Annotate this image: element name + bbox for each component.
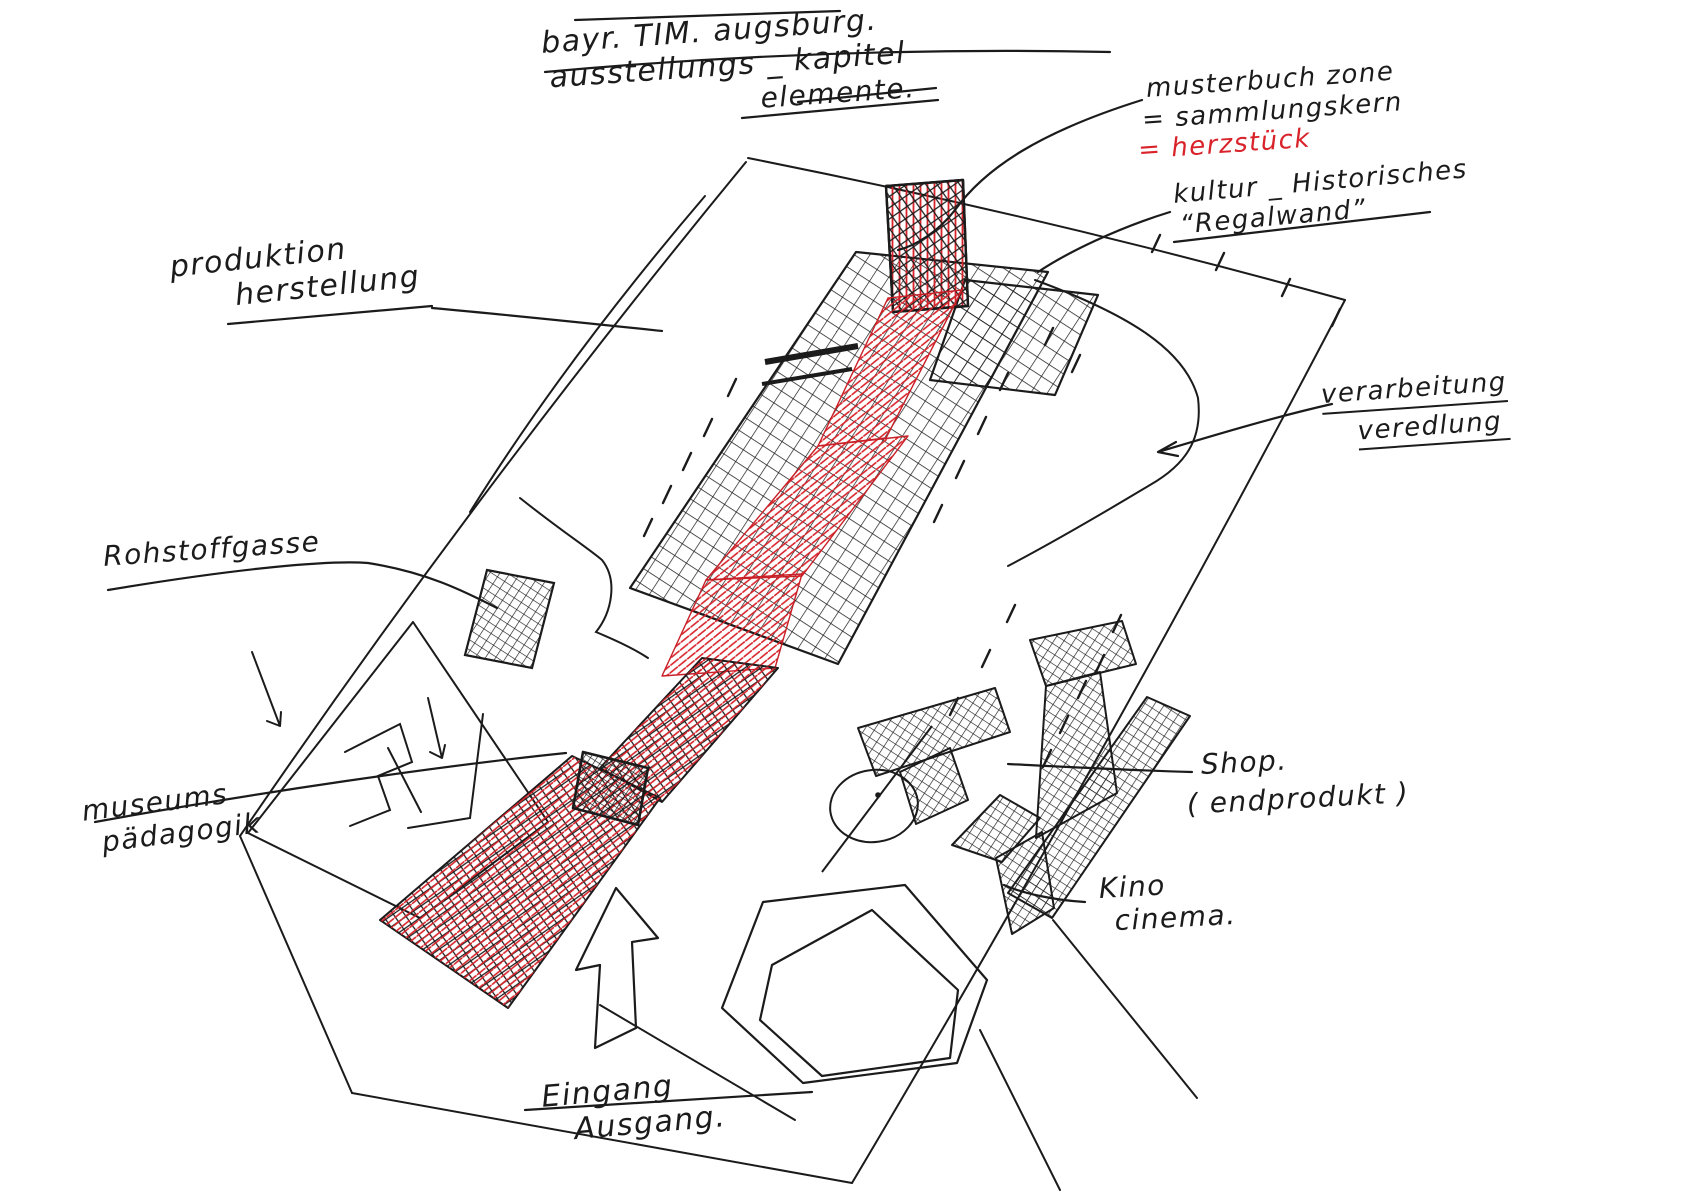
entrance-arrow [576,888,658,1048]
label-kino: Kino cinema. [1098,865,1237,938]
leader-rohstoffgasse [108,562,497,608]
site-boundary [240,158,1345,1190]
kino-line2: cinema. [1114,898,1238,937]
rohstoff-gasse-strip [465,570,554,668]
cinema-pentagon [722,885,987,1083]
leader-verarbeitung [1158,404,1332,456]
label-verarbeitung: verarbeitung veredlung [1320,367,1511,453]
entrance-wedge [380,658,778,1008]
leader-produktion [432,308,662,331]
leader-kultur [1038,212,1170,272]
label-shop: Shop. ( endprodukt ) [1200,737,1410,820]
label-musterbuch-zone: musterbuch zone = sammlungskern = herzst… [1145,56,1406,166]
sketch-page: bayr. TIM. augsburg. ausstellungs _ kapi… [0,0,1696,1200]
